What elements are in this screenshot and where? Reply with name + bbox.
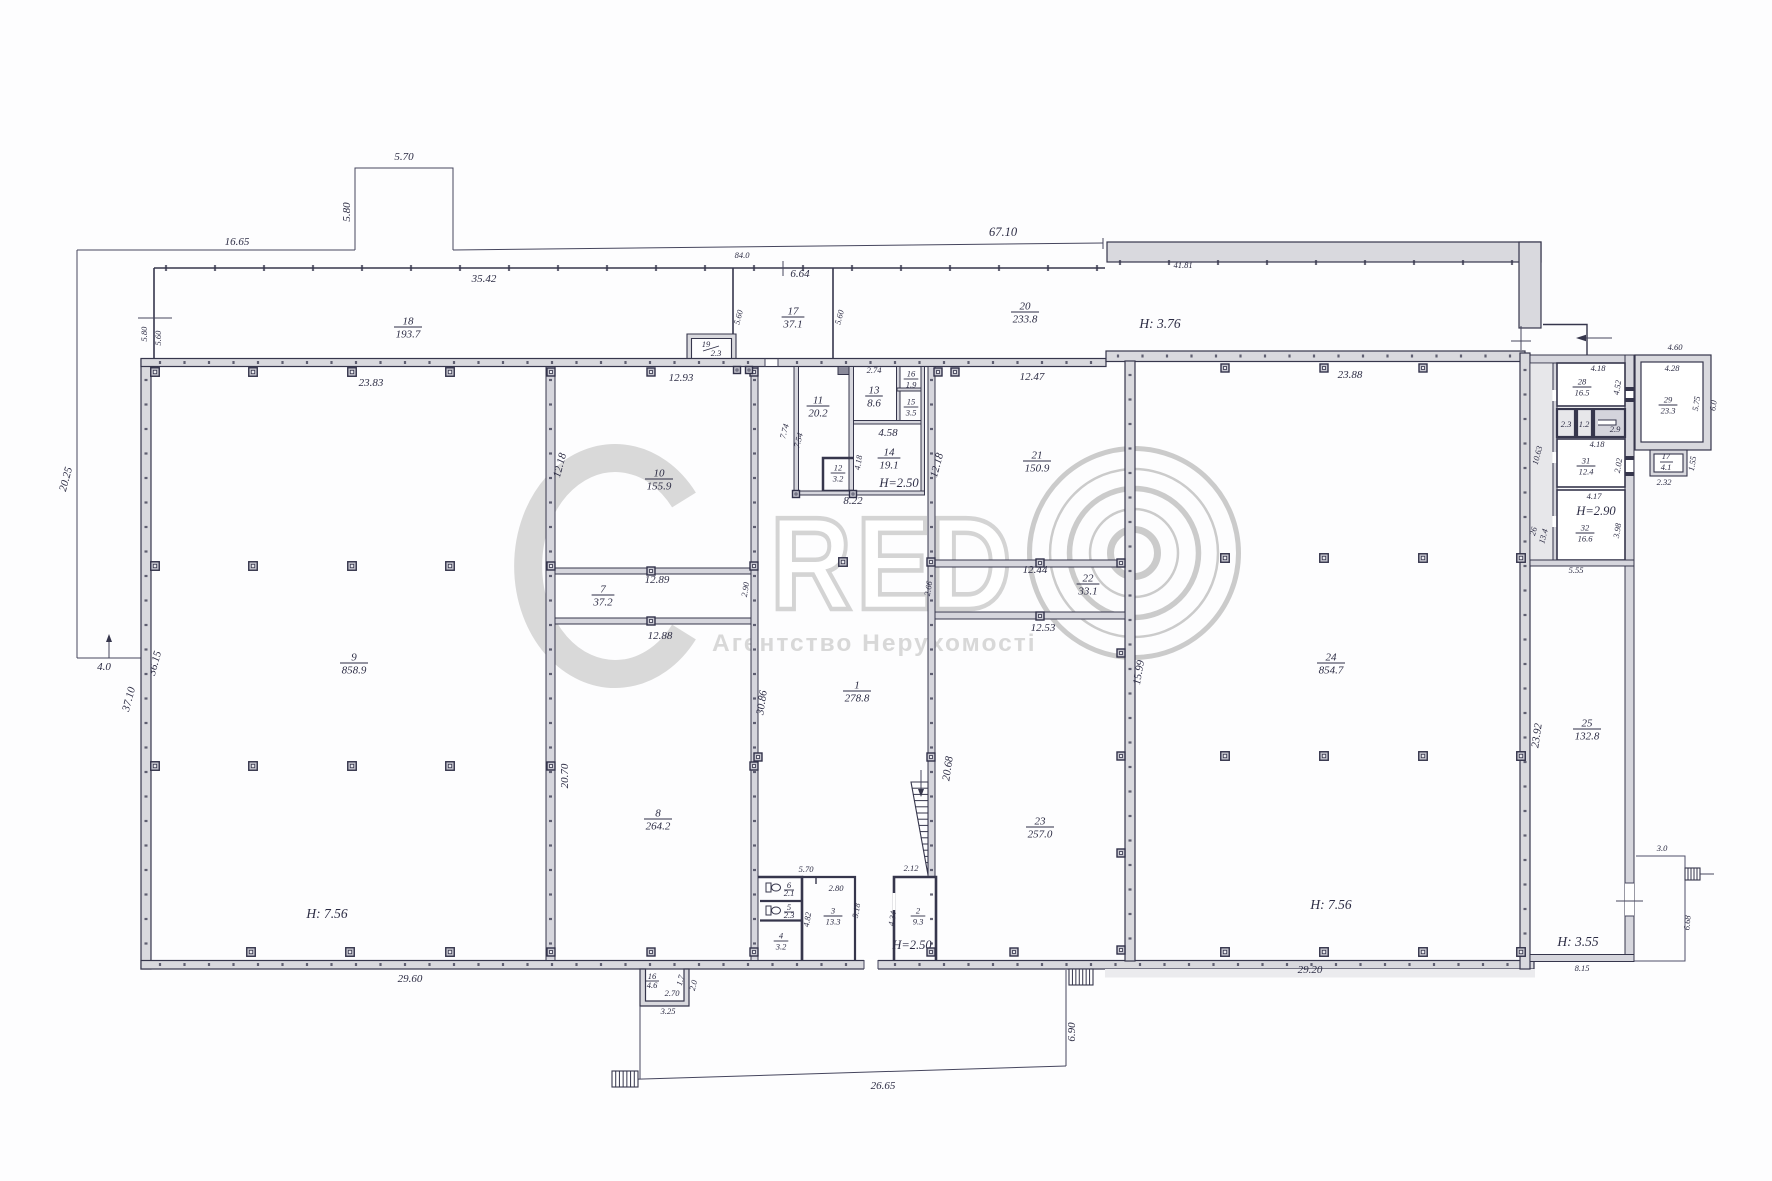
svg-text:2.80: 2.80 <box>829 883 845 893</box>
svg-text:2.9: 2.9 <box>1610 424 1621 434</box>
svg-text:H: 3.55: H: 3.55 <box>1556 934 1598 949</box>
svg-text:E: E <box>856 491 932 638</box>
svg-text:H=2.50: H=2.50 <box>878 476 919 490</box>
svg-text:16.6: 16.6 <box>1578 534 1594 544</box>
svg-text:4.0: 4.0 <box>97 661 111 673</box>
svg-text:H=2.50: H=2.50 <box>891 938 932 952</box>
svg-text:23.88: 23.88 <box>1338 369 1363 381</box>
svg-text:6.68: 6.68 <box>1681 914 1692 930</box>
svg-text:12.93: 12.93 <box>669 372 694 384</box>
svg-text:13.3: 13.3 <box>826 917 841 927</box>
svg-text:29.60: 29.60 <box>398 973 423 985</box>
svg-text:3.2: 3.2 <box>832 474 844 484</box>
svg-text:4.17: 4.17 <box>1587 491 1603 501</box>
svg-text:23.83: 23.83 <box>359 377 384 389</box>
svg-text:150.9: 150.9 <box>1025 463 1050 475</box>
svg-text:37.1: 37.1 <box>782 319 802 331</box>
svg-text:H: 3.76: H: 3.76 <box>1138 316 1180 331</box>
svg-text:32: 32 <box>1580 523 1590 533</box>
svg-text:10: 10 <box>654 468 666 480</box>
svg-text:2.1: 2.1 <box>784 888 795 898</box>
svg-text:20: 20 <box>1020 301 1032 313</box>
svg-text:16.5: 16.5 <box>1575 388 1590 398</box>
svg-text:4.60: 4.60 <box>1668 342 1684 352</box>
svg-text:18: 18 <box>403 316 415 328</box>
svg-text:858.9: 858.9 <box>342 665 367 677</box>
svg-text:5.70: 5.70 <box>799 864 815 874</box>
svg-text:23: 23 <box>1035 816 1047 828</box>
svg-text:14: 14 <box>884 447 896 459</box>
svg-text:16.65: 16.65 <box>225 236 250 248</box>
svg-text:26.65: 26.65 <box>871 1080 896 1092</box>
svg-text:2.3: 2.3 <box>711 348 722 358</box>
svg-text:17: 17 <box>788 306 800 318</box>
svg-text:7: 7 <box>600 584 606 596</box>
svg-text:12.47: 12.47 <box>1020 371 1045 383</box>
svg-text:4.6: 4.6 <box>647 980 658 990</box>
svg-text:17: 17 <box>1662 451 1671 461</box>
svg-text:12: 12 <box>834 463 843 473</box>
svg-text:21: 21 <box>1032 450 1043 462</box>
svg-text:H=2.90: H=2.90 <box>1575 504 1616 518</box>
svg-text:6.90: 6.90 <box>1066 1022 1078 1042</box>
svg-text:35.42: 35.42 <box>471 273 497 285</box>
svg-text:193.7: 193.7 <box>396 329 421 341</box>
svg-text:3.25: 3.25 <box>660 1006 676 1016</box>
svg-text:33.1: 33.1 <box>1077 586 1097 598</box>
svg-text:15: 15 <box>907 397 916 407</box>
svg-text:3.0: 3.0 <box>1656 843 1668 853</box>
svg-text:29: 29 <box>1664 395 1673 405</box>
svg-text:29.20: 29.20 <box>1298 964 1323 976</box>
svg-text:854.7: 854.7 <box>1319 665 1344 677</box>
svg-text:19.1: 19.1 <box>879 460 898 472</box>
svg-text:4.58: 4.58 <box>878 427 898 439</box>
svg-text:2.74: 2.74 <box>867 365 883 375</box>
svg-text:2.32: 2.32 <box>1657 477 1673 487</box>
svg-text:84.0: 84.0 <box>735 250 751 260</box>
svg-text:20.70: 20.70 <box>559 763 571 788</box>
svg-text:23.3: 23.3 <box>1661 406 1676 416</box>
svg-text:8: 8 <box>655 808 661 820</box>
svg-text:233.8: 233.8 <box>1013 314 1038 326</box>
svg-text:257.0: 257.0 <box>1028 829 1053 841</box>
svg-text:4.1: 4.1 <box>1661 462 1672 472</box>
svg-text:1.2: 1.2 <box>1579 419 1590 429</box>
svg-text:12.88: 12.88 <box>648 630 673 642</box>
svg-text:13: 13 <box>869 385 881 397</box>
svg-text:11: 11 <box>813 395 823 407</box>
svg-text:20.2: 20.2 <box>808 408 828 420</box>
svg-text:2.70: 2.70 <box>665 988 681 998</box>
svg-text:9.3: 9.3 <box>913 917 924 927</box>
svg-text:6.64: 6.64 <box>790 268 810 280</box>
svg-text:31: 31 <box>1581 456 1591 466</box>
svg-text:8.6: 8.6 <box>867 398 881 410</box>
svg-text:2.3: 2.3 <box>784 910 795 920</box>
svg-text:12.4: 12.4 <box>1579 467 1595 477</box>
svg-text:4.28: 4.28 <box>1665 363 1681 373</box>
svg-text:155.9: 155.9 <box>647 481 672 493</box>
svg-text:25: 25 <box>1582 718 1594 730</box>
svg-text:H: 7.56: H: 7.56 <box>305 906 347 921</box>
svg-text:132.8: 132.8 <box>1575 731 1600 743</box>
svg-text:16: 16 <box>907 369 916 379</box>
svg-text:5.70: 5.70 <box>394 151 414 163</box>
svg-text:Агентство Нерухомості: Агентство Нерухомості <box>712 630 1037 657</box>
svg-text:19: 19 <box>702 339 711 349</box>
svg-text:5.80: 5.80 <box>139 326 149 342</box>
svg-text:3: 3 <box>830 906 835 916</box>
svg-text:9: 9 <box>351 652 357 664</box>
svg-text:278.8: 278.8 <box>845 693 870 705</box>
svg-text:22: 22 <box>1083 573 1095 585</box>
svg-text:3.2: 3.2 <box>775 942 787 952</box>
svg-text:5.60: 5.60 <box>153 330 163 346</box>
svg-text:67.10: 67.10 <box>989 225 1018 239</box>
svg-text:28: 28 <box>1578 377 1587 387</box>
svg-text:264.2: 264.2 <box>646 821 671 833</box>
svg-text:12.89: 12.89 <box>645 574 670 586</box>
svg-text:4.18: 4.18 <box>1591 363 1607 373</box>
svg-text:37.2: 37.2 <box>592 597 613 609</box>
svg-text:3.5: 3.5 <box>905 408 917 418</box>
svg-text:8.15: 8.15 <box>1575 963 1590 973</box>
svg-text:5.80: 5.80 <box>341 202 353 222</box>
svg-text:1.9: 1.9 <box>906 380 917 390</box>
svg-text:H: 7.56: H: 7.56 <box>1309 897 1351 912</box>
svg-text:12.53: 12.53 <box>1031 622 1056 634</box>
svg-text:24: 24 <box>1326 652 1338 664</box>
svg-text:2.3: 2.3 <box>1561 419 1572 429</box>
svg-text:1: 1 <box>854 680 860 692</box>
svg-text:4.18: 4.18 <box>1590 439 1606 449</box>
svg-text:2.12: 2.12 <box>904 863 920 873</box>
